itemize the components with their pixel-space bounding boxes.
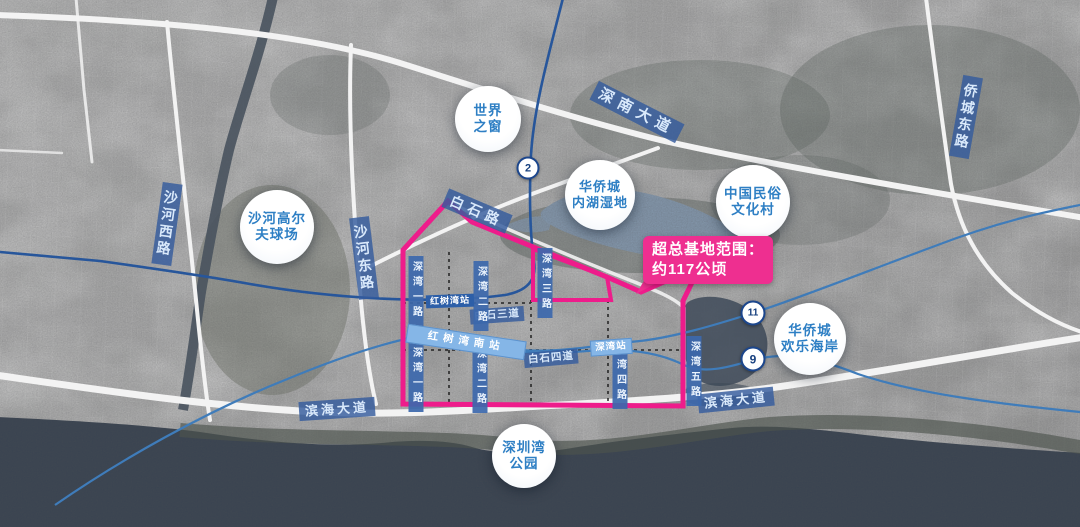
poi-text: 文化村 <box>731 202 775 218</box>
poi-text: 沙河高尔 <box>248 211 306 227</box>
base-area-callout: 超总基地范围： 约117公顷 <box>643 236 773 284</box>
poi-text: 之窗 <box>474 119 503 135</box>
road-label-shenwan-1st-north: 深湾一路 <box>409 256 424 326</box>
poi-circle-oct-wetland: 华侨城 内湖湿地 <box>565 160 635 230</box>
satellite-map: 世界 之窗 华侨城 内湖湿地 中国民俗 文化村 沙河高尔 夫球场 华侨城 欢乐海… <box>0 0 1080 527</box>
base-area-callout-line2: 约117公顷 <box>652 260 764 280</box>
base-area-callout-line1: 超总基地范围： <box>652 240 764 260</box>
road-label-shenwan-3rd: 深湾三路 <box>538 248 553 318</box>
poi-text: 欢乐海岸 <box>781 339 839 355</box>
metro-badge-line-9: 9 <box>741 347 766 372</box>
road-label-shenwan-5th: 深湾五路 <box>687 336 702 406</box>
poi-text: 世界 <box>474 103 503 119</box>
poi-text: 中国民俗 <box>724 186 782 202</box>
station-label-shenwan: 深湾站 <box>590 338 632 356</box>
poi-circle-shahe-golf-club: 沙河高尔 夫球场 <box>240 190 314 264</box>
poi-text: 深圳湾 <box>502 440 546 456</box>
poi-text: 内湖湿地 <box>572 195 628 211</box>
metro-badge-line-11: 11 <box>741 301 766 326</box>
road-label-shenwan-2nd-north: 深湾二路 <box>474 261 489 331</box>
poi-text: 华侨城 <box>788 323 832 339</box>
poi-circle-window-of-the-world: 世界 之窗 <box>455 86 521 152</box>
poi-text: 公园 <box>510 456 539 472</box>
road-label-shenwan-1st-south: 深湾一路 <box>409 342 424 412</box>
poi-text: 华侨城 <box>579 179 621 195</box>
poi-circle-oct-harbour: 华侨城 欢乐海岸 <box>774 303 846 375</box>
poi-circle-folk-culture-village: 中国民俗 文化村 <box>716 165 790 239</box>
metro-badge-line-2: 2 <box>517 157 540 180</box>
poi-circle-shenzhen-bay-park: 深圳湾 公园 <box>492 424 556 488</box>
poi-text: 夫球场 <box>255 227 299 243</box>
station-label-hongshuwan: 红树湾站 <box>426 294 474 309</box>
